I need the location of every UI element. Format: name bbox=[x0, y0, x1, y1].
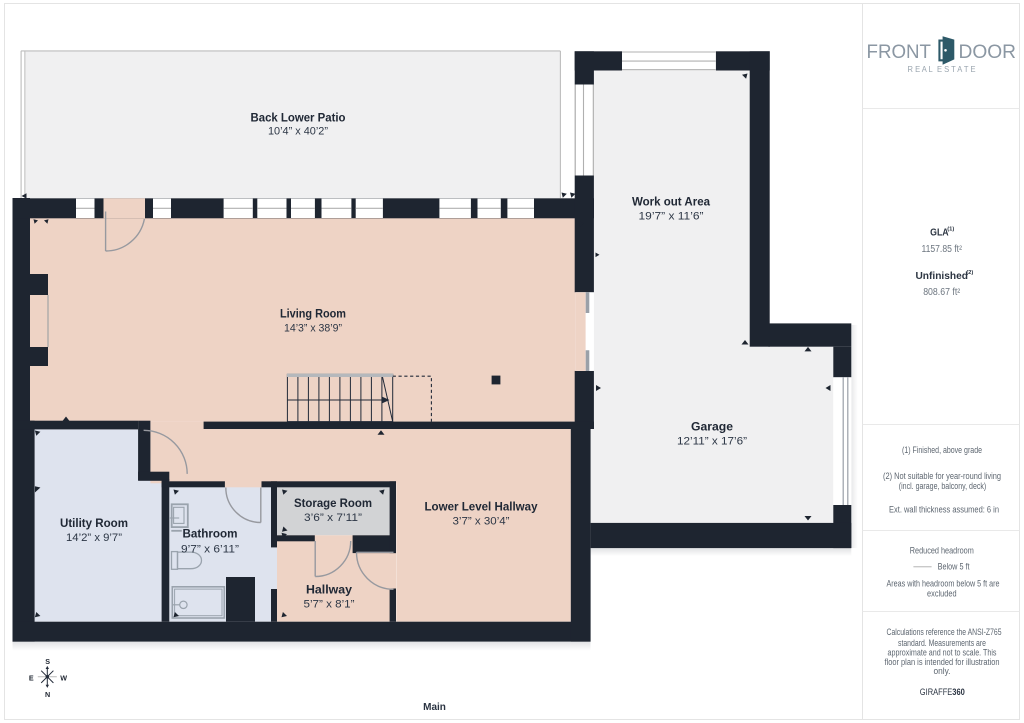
svg-text:(1) Finished, above grade: (1) Finished, above grade bbox=[902, 445, 982, 455]
svg-text:12’11” x 17’6”: 12’11” x 17’6” bbox=[677, 436, 747, 448]
svg-text:9’7” x 6’11”: 9’7” x 6’11” bbox=[181, 544, 239, 556]
svg-text:E: E bbox=[29, 673, 34, 682]
svg-text:Unfinished: Unfinished bbox=[915, 271, 968, 282]
svg-text:Areas with headroom below 5 ft: Areas with headroom below 5 ft are bbox=[887, 578, 1000, 588]
svg-text:Storage Room: Storage Room bbox=[294, 496, 372, 510]
svg-text:1157.85 ft²: 1157.85 ft² bbox=[921, 244, 962, 255]
svg-text:19’7” x 11’6”: 19’7” x 11’6” bbox=[639, 211, 704, 223]
svg-text:DOOR: DOOR bbox=[959, 41, 1017, 63]
svg-text:5’7” x 8’1”: 5’7” x 8’1” bbox=[304, 599, 355, 611]
svg-text:Bathroom: Bathroom bbox=[183, 527, 238, 541]
svg-text:excluded: excluded bbox=[927, 588, 957, 598]
svg-text:N: N bbox=[45, 690, 50, 699]
svg-text:Utility Room: Utility Room bbox=[60, 516, 128, 530]
svg-text:3’7” x 30’4”: 3’7” x 30’4” bbox=[453, 516, 510, 528]
svg-text:(1): (1) bbox=[947, 226, 954, 232]
svg-text:GIRAFFE360: GIRAFFE360 bbox=[920, 686, 965, 697]
svg-text:S: S bbox=[45, 657, 50, 666]
svg-text:14’3” x 38’9”: 14’3” x 38’9” bbox=[284, 323, 342, 335]
svg-text:Garage: Garage bbox=[691, 420, 733, 434]
svg-text:Work out Area: Work out Area bbox=[632, 195, 710, 209]
svg-text:10’4” x 40’2”: 10’4” x 40’2” bbox=[268, 126, 328, 138]
svg-text:GLA: GLA bbox=[930, 228, 949, 239]
svg-text:FRONT: FRONT bbox=[867, 41, 932, 63]
svg-text:Lower Level Hallway: Lower Level Hallway bbox=[425, 500, 538, 514]
svg-text:approximate and not to scale.: approximate and not to scale. This bbox=[888, 647, 997, 657]
svg-text:Main: Main bbox=[423, 702, 446, 713]
svg-text:Living Room: Living Room bbox=[280, 307, 346, 321]
svg-text:(2) Not suitable for year-roun: (2) Not suitable for year-round living bbox=[883, 471, 1001, 481]
svg-text:(incl. garage, balcony, deck): (incl. garage, balcony, deck) bbox=[899, 481, 987, 491]
svg-text:14’2” x 9’7”: 14’2” x 9’7” bbox=[66, 532, 122, 544]
svg-text:Calculations reference the ANS: Calculations reference the ANSI-Z765 bbox=[887, 627, 1002, 637]
svg-text:standard. Measurements are: standard. Measurements are bbox=[898, 638, 986, 648]
svg-text:Hallway: Hallway bbox=[306, 583, 352, 597]
svg-text:Below 5 ft: Below 5 ft bbox=[938, 561, 970, 571]
svg-text:Reduced headroom: Reduced headroom bbox=[910, 546, 974, 556]
svg-text:808.67 ft²: 808.67 ft² bbox=[923, 287, 961, 298]
svg-text:W: W bbox=[60, 673, 67, 682]
svg-text:(2): (2) bbox=[966, 270, 973, 276]
svg-text:Back Lower Patio: Back Lower Patio bbox=[251, 111, 346, 125]
svg-text:only.: only. bbox=[934, 666, 951, 676]
svg-text:3’6” x 7’11”: 3’6” x 7’11” bbox=[304, 512, 362, 524]
svg-text:R E A L E S T A T E: R E A L E S T A T E bbox=[908, 65, 976, 74]
svg-text:Ext. wall thickness assumed: 6: Ext. wall thickness assumed: 6 in bbox=[889, 505, 999, 515]
